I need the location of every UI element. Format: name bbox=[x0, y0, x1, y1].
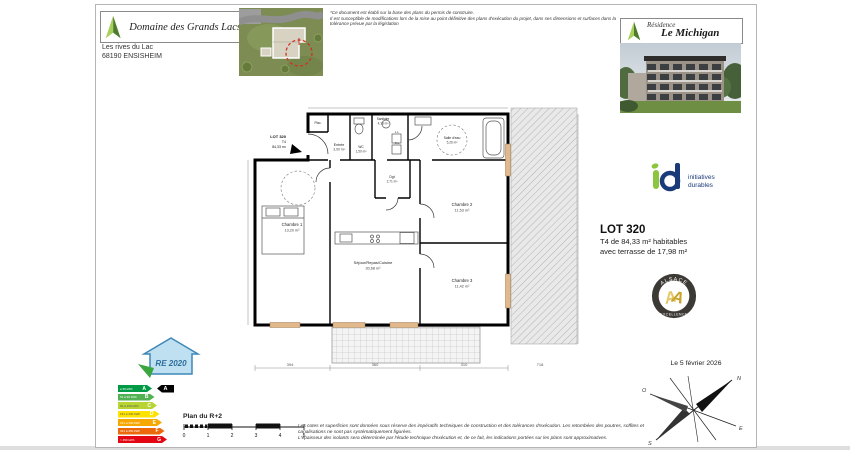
scale-tick: 3 bbox=[255, 433, 258, 439]
dpe-letter: C bbox=[147, 403, 151, 409]
lot-number: LOT 320 bbox=[600, 224, 760, 236]
badge-bottom-text: EXCELLENCE bbox=[660, 313, 688, 317]
lot-info: LOT 320 T4 de 84,33 m² habitables avec t… bbox=[600, 224, 760, 256]
compass-east: E bbox=[739, 426, 743, 432]
residence-triangle-icon bbox=[623, 20, 645, 42]
room-chambre2: Chambre 2 bbox=[452, 202, 473, 207]
dim-718: 718 bbox=[537, 362, 544, 367]
room-wc-area: 1,50 m² bbox=[356, 150, 367, 154]
tree bbox=[281, 65, 289, 73]
room-salle-eau-area: 5,26 m² bbox=[447, 141, 458, 145]
re2020-text: RE 2020 bbox=[155, 359, 187, 368]
room-chambre3-area: 11,42 m² bbox=[455, 285, 470, 289]
hatched-common-area bbox=[511, 108, 577, 344]
plan-date: Le 5 février 2026 bbox=[648, 360, 744, 367]
plan-level-title: Plan du R+2 bbox=[183, 413, 222, 420]
room-wc: WC bbox=[358, 145, 364, 149]
lot-tag-number: LOT 320 bbox=[270, 134, 287, 139]
site-plan-map bbox=[239, 8, 323, 76]
dpe-range: 231 à 330 kWh bbox=[120, 421, 140, 425]
room-salle-eau: Salle d'eau bbox=[444, 136, 461, 140]
room-chambre1-area: 13,20 m² bbox=[285, 229, 301, 233]
lot-tag-type: T4 bbox=[282, 140, 286, 144]
room-sejour-area: 30,68 m² bbox=[366, 267, 382, 271]
residence-name: Le Michigan bbox=[661, 27, 719, 39]
alsace-badge: A A ALSACE EXCELLENCE bbox=[650, 272, 698, 320]
address-line-1: Les rives du Lac bbox=[102, 44, 162, 53]
developer-name: Domaine des Grands Lacs bbox=[129, 22, 241, 33]
compass-north: N bbox=[737, 376, 741, 382]
scale-tick: 0 bbox=[183, 433, 186, 439]
dpe-range: 51 à 90 kWh bbox=[120, 395, 137, 399]
top-disclaimer: *Ce document est établi sur la base des … bbox=[330, 10, 625, 27]
scale-bar: 0 1 2 3 4 5 bbox=[180, 421, 310, 441]
residence-logo-box: Résidence Le Michigan bbox=[620, 18, 743, 44]
room-sanitaire: Sanitaire bbox=[377, 117, 390, 121]
top-disclaimer-line-2: Il est susceptible de modifications lors… bbox=[330, 16, 625, 27]
initiatives-durables-logo: initiatives durables bbox=[644, 160, 730, 196]
lot-type-area: T4 de 84,33 m² habitables bbox=[600, 237, 760, 246]
room-chambre1: Chambre 1 bbox=[282, 222, 303, 227]
developer-address: Les rives du Lac 68190 ENSISHEIM bbox=[102, 44, 162, 61]
dpe-letter: E bbox=[153, 420, 156, 426]
room-entree-area: 3,90 m² bbox=[333, 148, 345, 152]
dpe-range: 91 à 150 kWh bbox=[120, 404, 139, 408]
developer-triangle-icon bbox=[101, 13, 125, 41]
entrance-arrow-icon bbox=[290, 144, 302, 154]
lot-terrace-area: avec terrasse de 17,98 m² bbox=[600, 247, 760, 256]
room-sejour: Séjour/Repas/Cuisine bbox=[354, 260, 393, 265]
footer-disclaimer-line-1: Les cotes et superficies sont données so… bbox=[298, 424, 660, 436]
address-line-2: 68190 ENSISHEIM bbox=[102, 53, 162, 62]
tree bbox=[314, 34, 322, 42]
id-logo-text-2: durables bbox=[688, 182, 714, 189]
dpe-letter: A bbox=[142, 386, 146, 392]
room-chambre2-area: 11,53 m² bbox=[455, 209, 470, 213]
scale-tick: 4 bbox=[279, 433, 282, 439]
dim-394: 394 bbox=[287, 362, 294, 367]
dpe-range: 151 à 230 kWh bbox=[120, 412, 140, 416]
terrace bbox=[332, 327, 480, 363]
dpe-row-b: 51 à 90 kWhB bbox=[118, 394, 214, 403]
dpe-row-c: 91 à 150 kWhC bbox=[118, 402, 214, 411]
scale-tick: 1 bbox=[207, 433, 210, 439]
room-entree: Entrée bbox=[334, 143, 345, 147]
residence-photo bbox=[620, 43, 741, 113]
scale-tick: 2 bbox=[231, 433, 234, 439]
dpe-range: 331 à 450 kWh bbox=[120, 429, 140, 433]
compass-west: O bbox=[642, 388, 647, 394]
re2020-house-icon: RE 2020 bbox=[136, 336, 206, 378]
room-placard: Plac. bbox=[314, 121, 321, 125]
footer-disclaimer-line-2: L'épaisseur des isolants sera déterminée… bbox=[298, 436, 660, 442]
building-roof bbox=[644, 56, 726, 61]
dpe-selected-tag: A bbox=[157, 385, 174, 393]
tree bbox=[242, 62, 252, 72]
dpe-letter: G bbox=[157, 437, 161, 443]
room-dgt: Dgt bbox=[389, 175, 394, 179]
floor-plan: 394 360 310 718 723 bbox=[240, 106, 585, 378]
entrance-door-gap bbox=[306, 133, 310, 155]
dpe-letter: D bbox=[150, 411, 154, 417]
lot-tag-area: 84,33 m² bbox=[272, 145, 287, 149]
footer-disclaimer: Les cotes et superficies sont données so… bbox=[298, 424, 660, 442]
dpe-row-a: ≤ 50 kWhA A bbox=[118, 385, 214, 394]
developer-logo-box: Domaine des Grands Lacs bbox=[100, 11, 242, 43]
dpe-letter: F bbox=[155, 428, 158, 434]
dpe-range: ≤ 50 kWh bbox=[120, 387, 133, 391]
lawn bbox=[620, 101, 741, 113]
dpe-letter: B bbox=[145, 394, 149, 400]
id-logo-text-1: initiatives bbox=[688, 174, 715, 181]
entrance-lot-tag: LOT 320 T4 84,33 m² bbox=[270, 134, 302, 154]
washer-label: L.L bbox=[395, 130, 400, 134]
room-dgt-area: 2,71 m² bbox=[387, 180, 398, 184]
dryer-label: S.L bbox=[395, 141, 400, 145]
room-sanitaire-area: 4,13 m² bbox=[378, 122, 389, 126]
dpe-range: > 450 kWh bbox=[120, 438, 134, 442]
room-chambre3: Chambre 3 bbox=[452, 278, 473, 283]
